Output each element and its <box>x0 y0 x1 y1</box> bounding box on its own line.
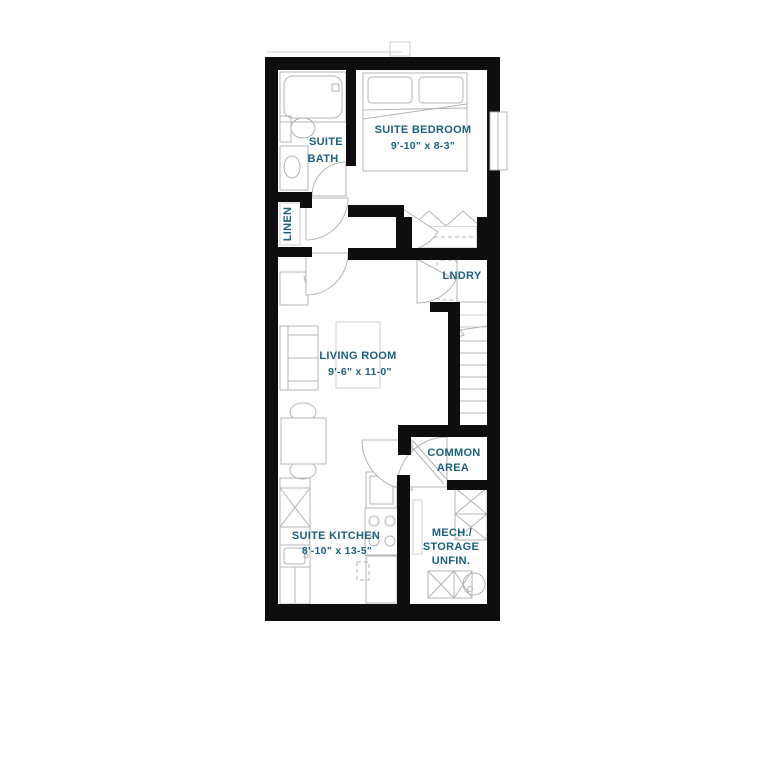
bedroom-window <box>490 112 507 170</box>
wall-linen-bottom <box>278 247 312 257</box>
label-laundry: LNDRY <box>443 270 482 282</box>
label-suite-bath: SUITE <box>309 136 343 148</box>
wall-stairwell <box>448 302 460 437</box>
wall-common-top <box>398 425 487 437</box>
label-suite-kitchen: SUITE KITCHEN <box>292 530 380 542</box>
wall-closet-stub <box>477 217 487 248</box>
floor-plan: SUITE BATH SUITE BEDROOM 9'-10" x 8-3" L… <box>0 0 768 768</box>
label-living-room-dims: 9'-6" x 11-0" <box>328 366 392 378</box>
wall-common-bottom <box>447 480 487 490</box>
pillow <box>419 77 463 103</box>
label-linen: LINEN <box>282 207 294 242</box>
dining-table <box>281 418 326 464</box>
label-mech-storage: STORAGE <box>423 541 479 553</box>
wall-closet-stub <box>396 217 412 248</box>
bifold-door <box>446 211 480 226</box>
pillow <box>368 77 412 103</box>
label-mech-storage: UNFIN. <box>432 555 470 567</box>
hall-door <box>306 198 348 240</box>
label-suite-kitchen-dims: 8'-10" x 13-5" <box>302 545 372 557</box>
dining-set <box>281 403 326 479</box>
counter-base <box>366 556 397 603</box>
wall-bath-right <box>346 70 356 166</box>
tub-drain <box>332 84 339 91</box>
burner <box>385 516 395 526</box>
wall-left <box>265 57 278 621</box>
label-suite-bedroom-dims: 9'-10" x 8-3" <box>391 140 455 152</box>
water-heater <box>463 573 485 595</box>
wall-kitchen-mech <box>397 475 410 604</box>
linen-door <box>306 253 348 295</box>
toilet-bowl <box>291 118 315 138</box>
bed <box>363 73 467 171</box>
wall-top <box>265 57 500 70</box>
shelf <box>413 500 422 554</box>
label-living-room: LIVING ROOM <box>319 350 396 362</box>
label-common-area: COMMON <box>427 447 480 459</box>
wall-common-stub <box>398 425 411 455</box>
roof-hairline <box>267 42 410 56</box>
wall-hall-south <box>348 248 487 260</box>
label-suite-bath: BATH <box>308 153 339 165</box>
wall-bottom <box>265 604 500 621</box>
burner <box>369 516 379 526</box>
toilet-tank <box>280 116 291 142</box>
sink-bath <box>284 156 300 178</box>
label-suite-bedroom: SUITE BEDROOM <box>375 124 472 136</box>
bathtub <box>280 72 346 122</box>
wall-bedroom-south <box>348 205 404 217</box>
floor-plan-page: SUITE BATH SUITE BEDROOM 9'-10" x 8-3" L… <box>0 0 768 768</box>
wall-laundry-bottom <box>430 302 460 312</box>
label-mech-storage: MECH./ <box>432 527 472 539</box>
burner <box>385 536 395 546</box>
label-common-area: AREA <box>437 462 469 474</box>
bath-door <box>312 162 346 196</box>
